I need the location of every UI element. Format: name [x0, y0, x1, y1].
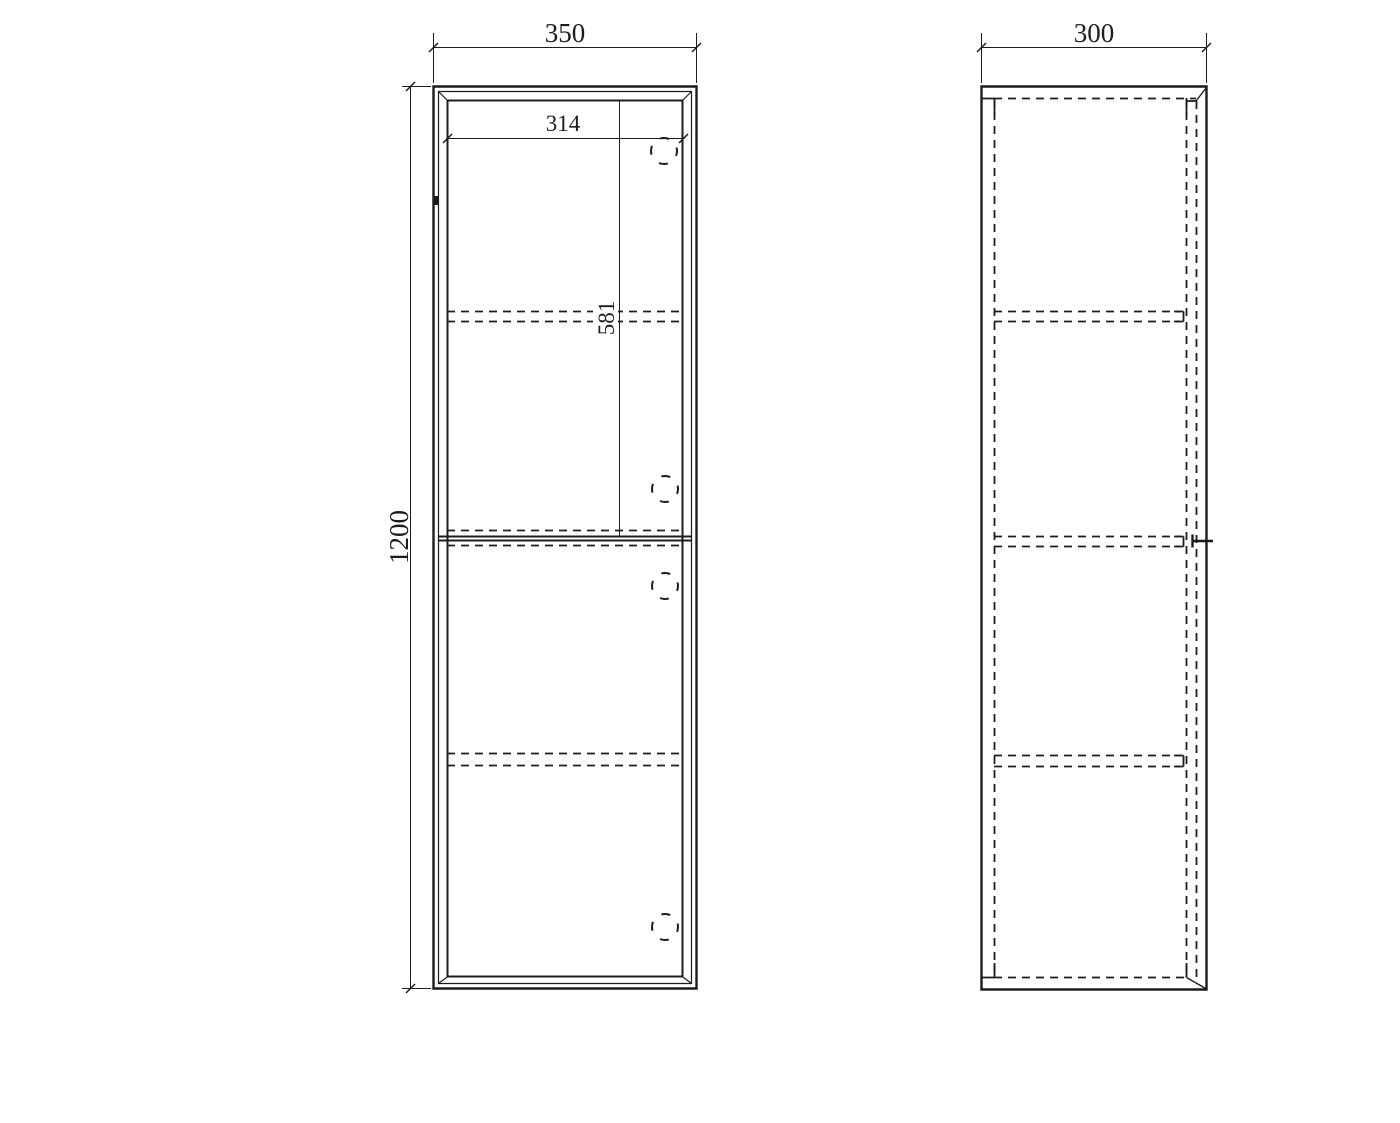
- front-shelf1-hidden-lines: [447, 312, 683, 322]
- dim-side-depth: 300: [977, 18, 1211, 83]
- front-door-split-lines: [438, 537, 692, 541]
- dim-front-inner-width-label: 314: [546, 111, 581, 136]
- front-hinge-hole-4: [652, 914, 678, 940]
- front-middle-panel-hidden-lines: [447, 531, 683, 546]
- front-left-frame-mark: [434, 196, 438, 205]
- front-door-panel-outline: [448, 101, 683, 977]
- technical-drawing-canvas: 350 1200 314 581: [0, 0, 1400, 1123]
- dim-front-height: 1200: [384, 82, 431, 993]
- dim-front-height-label: 1200: [384, 510, 414, 564]
- side-shelf2-hidden-lines: [994, 756, 1180, 767]
- dim-front-width-label: 350: [545, 18, 586, 48]
- dim-side-depth-label: 300: [1074, 18, 1115, 48]
- dim-front-width: 350: [429, 18, 701, 83]
- side-door-handle-mark: [1193, 535, 1214, 548]
- front-hinge-hole-1: [651, 138, 677, 164]
- side-shelf-end-joint-marks: [1174, 312, 1184, 767]
- side-corner-joint-marks: [983, 99, 1197, 978]
- side-middle-panel-hidden-lines: [994, 537, 1180, 547]
- front-hinge-hole-3: [652, 573, 678, 599]
- dim-front-inner-width: 314: [443, 111, 688, 143]
- side-view: 300: [977, 18, 1213, 990]
- front-shelf2-hidden-lines: [447, 754, 683, 766]
- side-shelf1-hidden-lines: [994, 312, 1180, 322]
- front-view: 350 1200 314 581: [384, 18, 701, 993]
- dim-front-upper-door-height-label: 581: [594, 301, 619, 336]
- side-outer-outline: [982, 87, 1207, 990]
- side-top-bottom-panel-hidden-lines: [994, 99, 1196, 978]
- front-hinge-hole-2: [652, 476, 678, 502]
- dim-front-upper-door-height: 581: [593, 101, 620, 537]
